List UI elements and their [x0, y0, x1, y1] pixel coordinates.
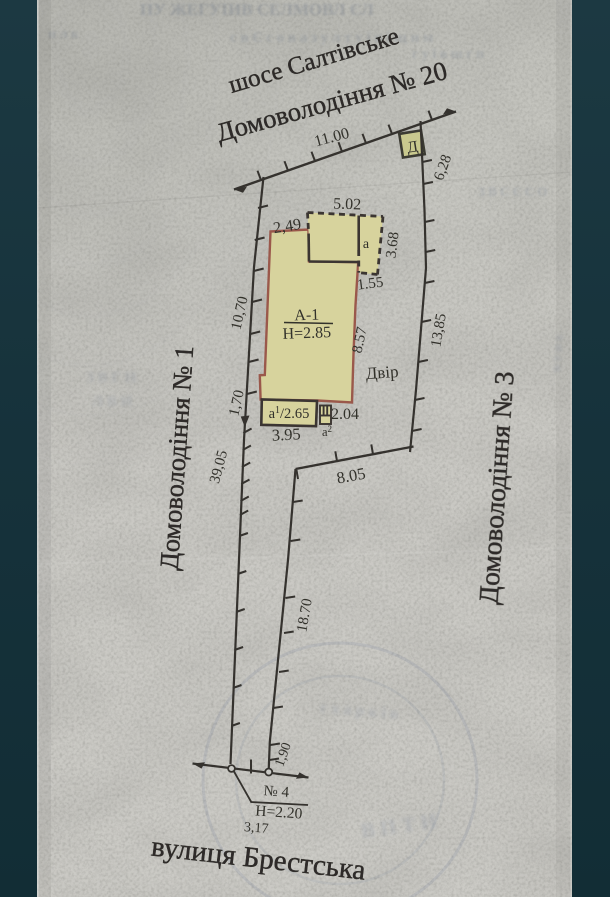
svg-text:2.04: 2.04	[331, 406, 359, 423]
svg-text:3.68: 3.68	[383, 231, 402, 259]
svg-text:Двір: Двір	[365, 362, 399, 383]
svg-text:З В С Є С О: З В С Є С О	[478, 184, 548, 199]
svg-text:№ 4: № 4	[263, 783, 290, 801]
svg-text:Л В И: Л В И	[92, 394, 133, 410]
svg-text:А-1: А-1	[294, 307, 319, 325]
svg-text:1.55: 1.55	[356, 275, 384, 294]
svg-text:3.95: 3.95	[271, 424, 301, 444]
svg-text:в т и х: в т и х	[548, 334, 566, 373]
svg-text:3,17: 3,17	[244, 820, 269, 837]
svg-text:ПУ ЖЕГУІИВ СЕЛМОВЛ ЄЛ: ПУ ЖЕГУІИВ СЕЛМОВЛ ЄЛ	[140, 0, 374, 19]
svg-text:Н=2.20: Н=2.20	[255, 802, 303, 822]
svg-text:5.02: 5.02	[333, 196, 362, 214]
svg-text:а: а	[363, 237, 370, 252]
svg-text:Н=2.85: Н=2.85	[282, 324, 331, 343]
svg-text:н л к: н л к	[48, 27, 80, 42]
svg-text:а1/2.65: а1/2.65	[269, 405, 310, 422]
svg-text:З В Г Н: З В Г Н	[86, 370, 137, 386]
